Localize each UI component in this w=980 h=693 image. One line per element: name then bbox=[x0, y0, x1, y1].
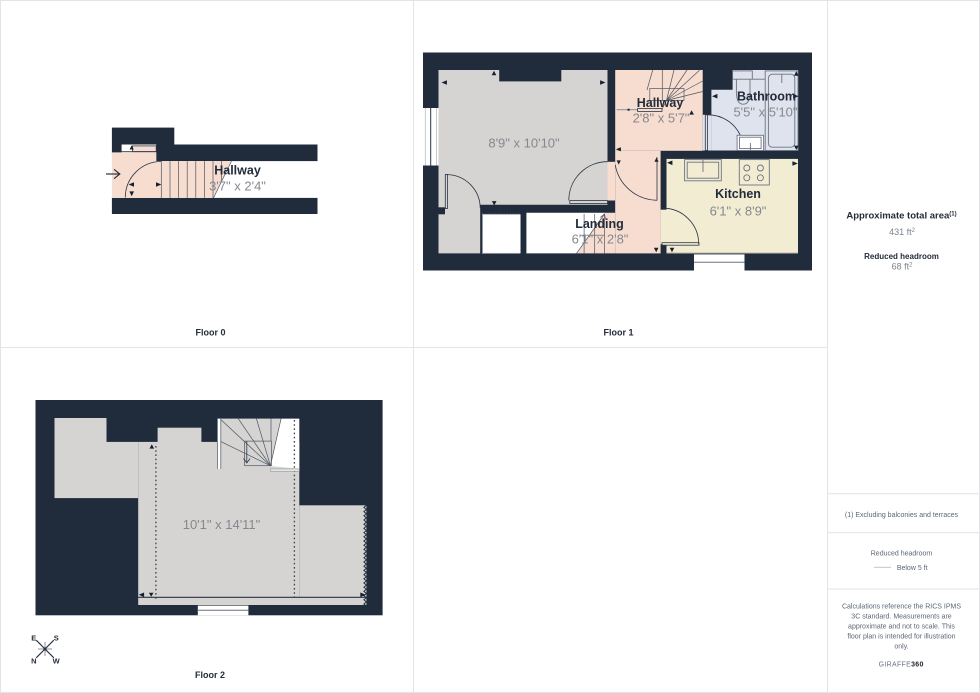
svg-text:S: S bbox=[54, 634, 59, 643]
svg-text:Reduced headroom: Reduced headroom bbox=[864, 252, 939, 261]
svg-text:GIRAFFE360: GIRAFFE360 bbox=[879, 662, 924, 669]
svg-text:approximate and not to scale.: approximate and not to scale. This bbox=[848, 624, 955, 631]
svg-text:Hallway: Hallway bbox=[637, 96, 684, 110]
svg-text:W: W bbox=[53, 656, 61, 665]
svg-text:(1) Excluding balconies and te: (1) Excluding balconies and terraces bbox=[845, 512, 959, 519]
svg-text:Calculations reference the RIC: Calculations reference the RICS IPMS bbox=[842, 604, 961, 611]
svg-text:only.: only. bbox=[894, 644, 908, 651]
svg-text:8'9" x 10'10": 8'9" x 10'10" bbox=[488, 136, 560, 151]
svg-text:N: N bbox=[31, 656, 36, 665]
svg-text:3'7" x 2'4": 3'7" x 2'4" bbox=[209, 179, 266, 194]
svg-text:6'1" x 8'9": 6'1" x 8'9" bbox=[710, 203, 767, 218]
svg-text:Below 5 ft: Below 5 ft bbox=[897, 565, 928, 572]
svg-text:6'1" x 2'8": 6'1" x 2'8" bbox=[572, 232, 629, 247]
svg-text:3C standard. Measurements are: 3C standard. Measurements are bbox=[851, 614, 951, 621]
svg-text:Landing: Landing bbox=[575, 217, 624, 231]
svg-text:Bathroom: Bathroom bbox=[737, 89, 796, 103]
svg-text:Floor 2: Floor 2 bbox=[195, 670, 225, 680]
svg-text:5'5" x 5'10": 5'5" x 5'10" bbox=[733, 105, 797, 120]
svg-text:10'1" x 14'11": 10'1" x 14'11" bbox=[183, 517, 261, 532]
svg-text:Floor 0: Floor 0 bbox=[195, 327, 225, 337]
svg-text:Reduced headroom: Reduced headroom bbox=[871, 551, 933, 558]
svg-text:Floor 1: Floor 1 bbox=[603, 327, 633, 337]
svg-text:Approximate total area(1): Approximate total area(1) bbox=[846, 211, 956, 222]
svg-text:2'8" x 5'7": 2'8" x 5'7" bbox=[633, 111, 690, 126]
svg-text:E: E bbox=[31, 634, 36, 643]
svg-text:Hallway: Hallway bbox=[214, 164, 261, 178]
svg-text:floor plan is intended for ill: floor plan is intended for illustration bbox=[847, 634, 955, 641]
svg-text:Kitchen: Kitchen bbox=[715, 187, 761, 201]
